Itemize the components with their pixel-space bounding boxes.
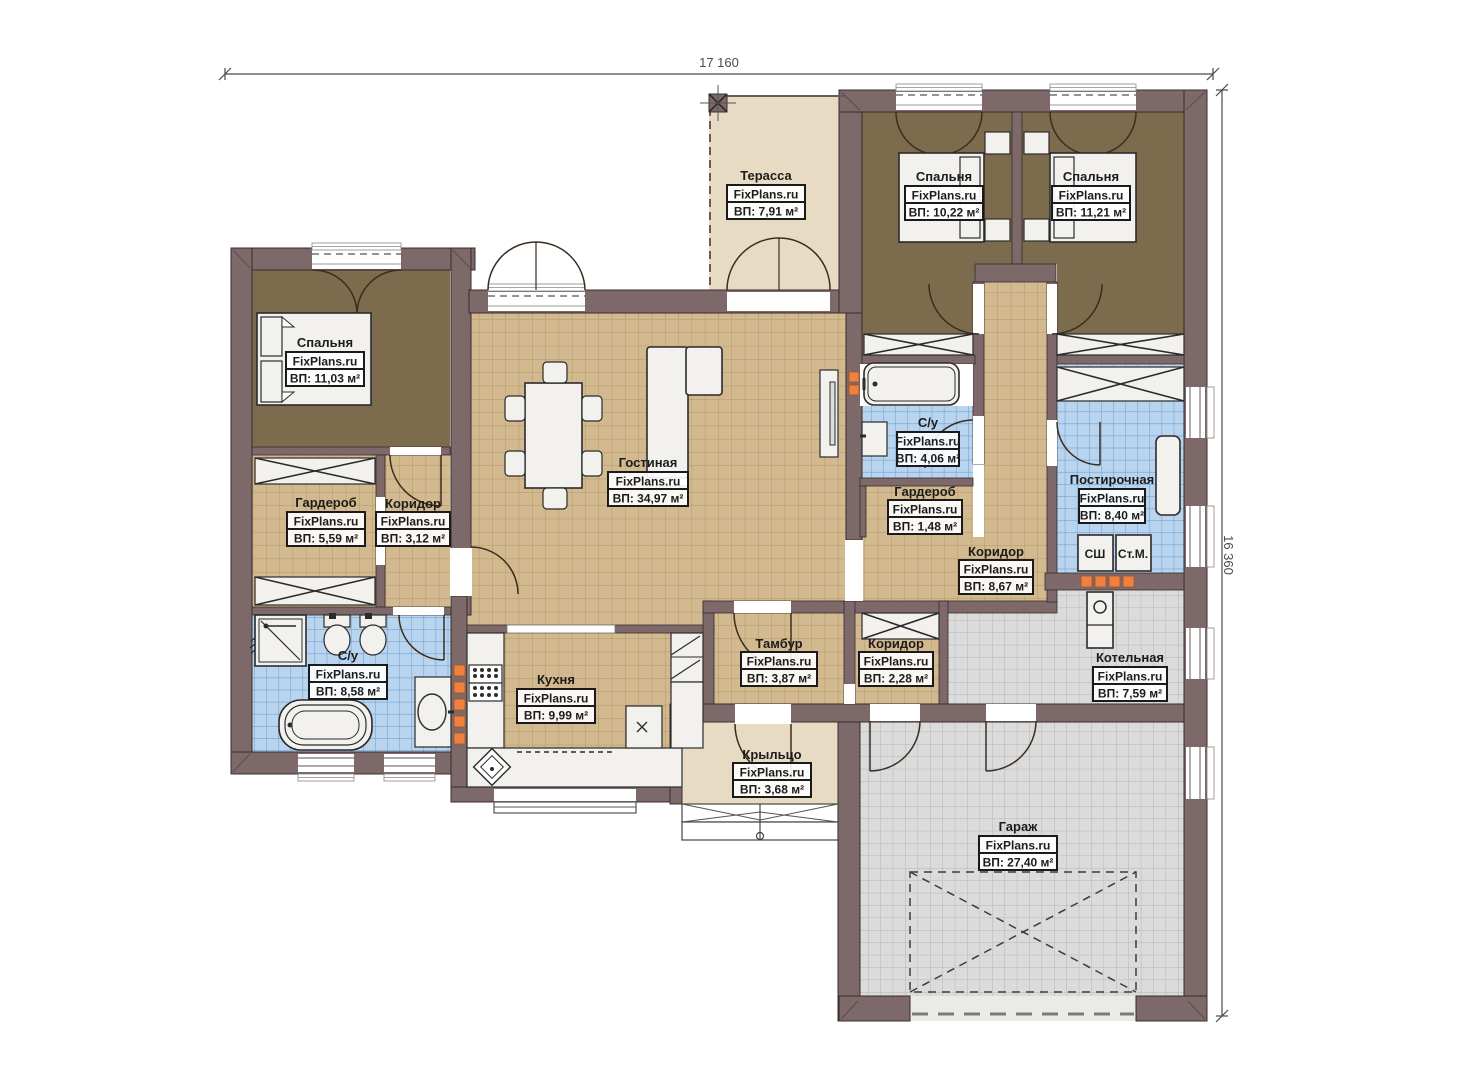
- svg-text:FixPlans.ru: FixPlans.ru: [381, 515, 446, 529]
- svg-text:ВП: 5,59 м²: ВП: 5,59 м²: [294, 532, 358, 546]
- svg-text:ВП: 1,48 м²: ВП: 1,48 м²: [893, 520, 957, 534]
- svg-text:16 360: 16 360: [1221, 535, 1236, 575]
- svg-text:ВП: 8,67 м²: ВП: 8,67 м²: [964, 580, 1028, 594]
- svg-text:FixPlans.ru: FixPlans.ru: [1059, 189, 1124, 203]
- svg-text:Котельная: Котельная: [1096, 650, 1164, 665]
- svg-text:FixPlans.ru: FixPlans.ru: [893, 503, 958, 517]
- svg-text:FixPlans.ru: FixPlans.ru: [964, 563, 1029, 577]
- svg-text:С/у: С/у: [918, 415, 939, 430]
- svg-text:Коридор: Коридор: [868, 636, 924, 651]
- svg-text:FixPlans.ru: FixPlans.ru: [1098, 670, 1163, 684]
- svg-text:ВП: 2,28 м²: ВП: 2,28 м²: [864, 672, 928, 686]
- svg-text:FixPlans.ru: FixPlans.ru: [740, 766, 805, 780]
- svg-text:Спальня: Спальня: [1063, 169, 1119, 184]
- svg-text:Тамбур: Тамбур: [755, 636, 802, 651]
- svg-text:FixPlans.ru: FixPlans.ru: [986, 839, 1051, 853]
- svg-text:ВП: 4,06 м²: ВП: 4,06 м²: [896, 452, 960, 466]
- svg-text:FixPlans.ru: FixPlans.ru: [1080, 492, 1145, 506]
- svg-text:Ст.М.: Ст.М.: [1118, 547, 1148, 561]
- svg-text:ВП: 11,03 м²: ВП: 11,03 м²: [290, 372, 360, 386]
- svg-text:ВП: 11,21 м²: ВП: 11,21 м²: [1056, 206, 1126, 220]
- svg-text:FixPlans.ru: FixPlans.ru: [524, 692, 589, 706]
- svg-text:Постирочная: Постирочная: [1070, 472, 1154, 487]
- svg-text:FixPlans.ru: FixPlans.ru: [912, 189, 977, 203]
- svg-text:ВП: 3,87 м²: ВП: 3,87 м²: [747, 672, 811, 686]
- svg-text:Крыльцо: Крыльцо: [742, 747, 801, 762]
- svg-text:Гараж: Гараж: [999, 819, 1039, 834]
- svg-text:ВП: 34,97 м²: ВП: 34,97 м²: [613, 492, 684, 506]
- svg-text:FixPlans.ru: FixPlans.ru: [734, 188, 799, 202]
- svg-text:С/у: С/у: [338, 648, 359, 663]
- svg-text:Спальня: Спальня: [297, 335, 353, 350]
- svg-text:ВП: 8,58 м²: ВП: 8,58 м²: [316, 685, 380, 699]
- svg-text:ВП: 3,12 м²: ВП: 3,12 м²: [381, 532, 445, 546]
- svg-text:FixPlans.ru: FixPlans.ru: [747, 655, 812, 669]
- svg-text:FixPlans.ru: FixPlans.ru: [294, 515, 359, 529]
- svg-text:ВП: 8,40 м²: ВП: 8,40 м²: [1080, 509, 1144, 523]
- svg-text:ВП: 7,59 м²: ВП: 7,59 м²: [1098, 687, 1162, 701]
- svg-text:Коридор: Коридор: [968, 544, 1024, 559]
- svg-text:ВП: 10,22 м²: ВП: 10,22 м²: [909, 206, 980, 220]
- svg-text:ВП: 27,40 м²: ВП: 27,40 м²: [983, 856, 1054, 870]
- svg-text:FixPlans.ru: FixPlans.ru: [896, 435, 961, 449]
- svg-text:СШ: СШ: [1085, 547, 1106, 561]
- svg-text:FixPlans.ru: FixPlans.ru: [616, 475, 681, 489]
- svg-text:17 160: 17 160: [699, 55, 739, 70]
- svg-text:FixPlans.ru: FixPlans.ru: [864, 655, 929, 669]
- svg-text:ВП: 7,91 м²: ВП: 7,91 м²: [734, 205, 798, 219]
- svg-text:Гардероб: Гардероб: [295, 495, 356, 510]
- svg-text:FixPlans.ru: FixPlans.ru: [316, 668, 381, 682]
- svg-text:ВП: 9,99 м²: ВП: 9,99 м²: [524, 709, 588, 723]
- svg-text:Коридор: Коридор: [385, 496, 441, 511]
- svg-text:Гостиная: Гостиная: [619, 455, 678, 470]
- svg-text:ВП: 3,68 м²: ВП: 3,68 м²: [740, 783, 804, 797]
- svg-text:FixPlans.ru: FixPlans.ru: [293, 355, 358, 369]
- svg-text:Кухня: Кухня: [537, 672, 575, 687]
- svg-text:Спальня: Спальня: [916, 169, 972, 184]
- svg-text:Терасса: Терасса: [740, 168, 792, 183]
- svg-text:Гардероб: Гардероб: [894, 484, 955, 499]
